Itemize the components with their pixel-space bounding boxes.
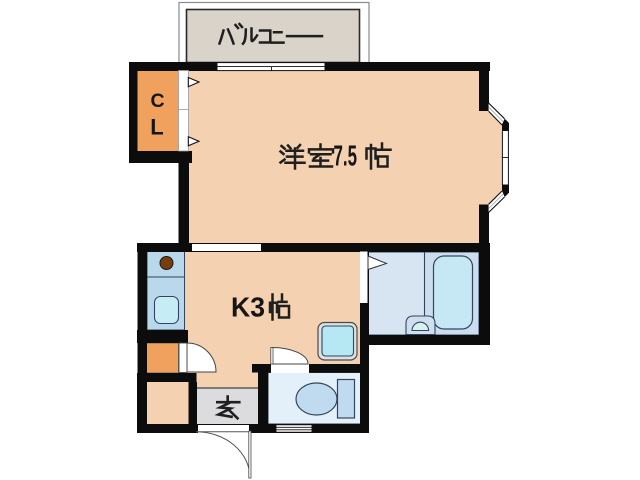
svg-text:7.5: 7.5 — [334, 141, 358, 173]
svg-text:L: L — [150, 115, 163, 140]
svg-text:C: C — [150, 90, 164, 112]
svg-text:K3: K3 — [231, 292, 265, 323]
